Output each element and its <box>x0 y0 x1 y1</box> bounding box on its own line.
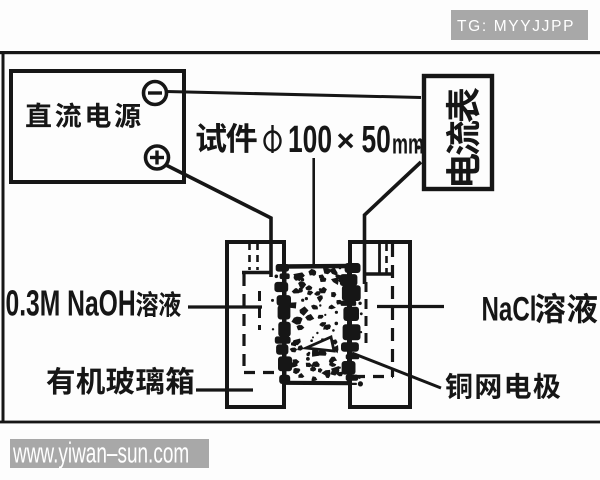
svg-text:NaCl: NaCl <box>482 291 537 329</box>
svg-text:×: × <box>337 123 355 158</box>
svg-text:mm: mm <box>392 128 424 160</box>
svg-text:50: 50 <box>362 117 391 160</box>
svg-text:TG: MYYJJPP: TG: MYYJJPP <box>457 18 575 35</box>
svg-text:0.3M NaOH: 0.3M NaOH <box>6 283 136 324</box>
svg-text:www.yiwan–sun.com: www.yiwan–sun.com <box>12 438 189 470</box>
svg-text:100: 100 <box>288 117 332 160</box>
